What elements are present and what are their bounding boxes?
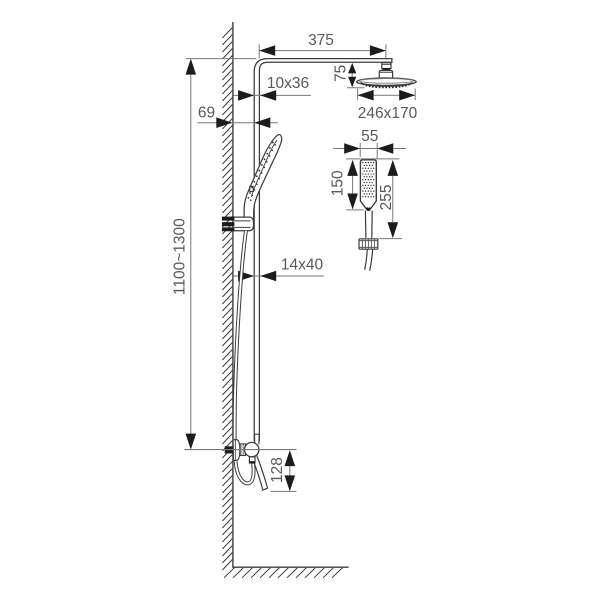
svg-text:375: 375 xyxy=(308,32,334,49)
svg-text:10x36: 10x36 xyxy=(267,75,309,92)
svg-text:1100~1300: 1100~1300 xyxy=(172,218,189,295)
svg-text:150: 150 xyxy=(329,170,346,196)
svg-text:128: 128 xyxy=(269,457,286,483)
svg-text:246x170: 246x170 xyxy=(358,105,418,122)
svg-text:255: 255 xyxy=(378,184,395,210)
svg-text:75: 75 xyxy=(333,65,350,82)
svg-text:69: 69 xyxy=(198,105,215,122)
svg-text:55: 55 xyxy=(361,128,378,145)
svg-text:14x40: 14x40 xyxy=(281,257,324,274)
